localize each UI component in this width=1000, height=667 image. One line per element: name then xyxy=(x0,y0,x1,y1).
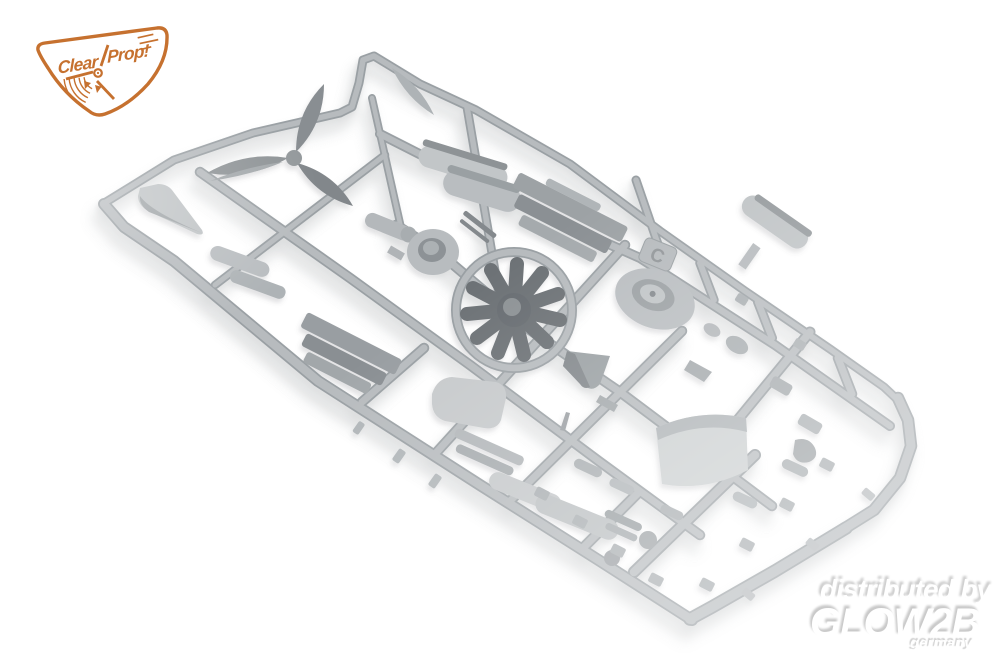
svg-text:germany: germany xyxy=(909,635,973,652)
